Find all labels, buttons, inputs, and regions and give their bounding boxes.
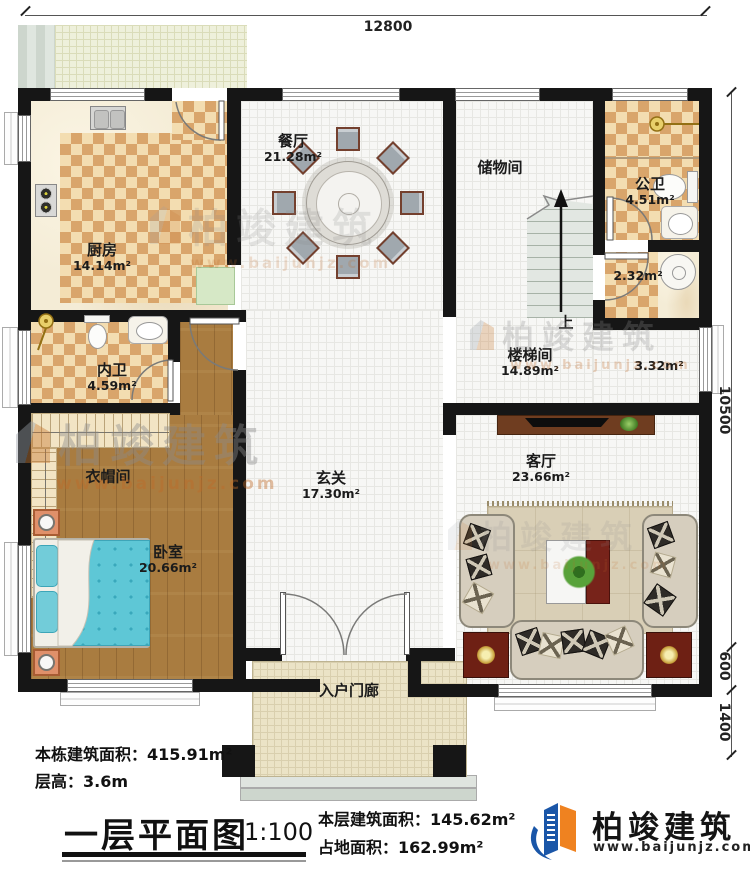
bath-window — [612, 88, 688, 101]
dining-window — [282, 88, 400, 101]
vanity-floor — [605, 252, 658, 318]
bed-pillow — [36, 545, 58, 587]
suite-corridor-floor — [180, 322, 233, 415]
window-sill — [4, 112, 18, 165]
wall-segment — [593, 101, 605, 255]
nightstand-lamp — [38, 514, 55, 531]
room-label-kitchen: 厨房 14.14m² — [73, 242, 131, 274]
wall-segment — [406, 648, 455, 661]
total-area-text: 本栋建筑面积：415.91m² — [35, 741, 232, 765]
wall-segment — [699, 88, 712, 697]
room-label-public-bath: 公卫 4.51m² — [625, 176, 674, 208]
dining-table-center — [338, 193, 360, 215]
window-sill — [2, 327, 18, 408]
dining-chair — [400, 191, 424, 215]
room-label-nook: 3.32m² — [634, 359, 683, 373]
kitchen-terrace-doorway-floor — [172, 101, 228, 140]
floor-plan-canvas: 12800 10500 600 1400 — [0, 0, 750, 870]
room-label-storage: 储物间 — [477, 159, 522, 176]
terrace-door-opening — [172, 88, 227, 101]
terrace-deck — [18, 25, 55, 88]
dining-chair — [336, 127, 360, 151]
sink-basin — [110, 110, 125, 129]
kitchen-stove — [35, 184, 57, 217]
floor-height-text: 层高：3.6m — [35, 768, 128, 792]
porch-step — [240, 788, 477, 801]
kitchen-sink — [90, 106, 126, 130]
kitchen-window — [50, 88, 145, 101]
entry-door-leaf — [280, 592, 286, 655]
bedroom-window — [67, 679, 193, 692]
window-sill — [4, 542, 18, 656]
bed-duvet — [58, 540, 150, 646]
kitchen-door-mat — [196, 267, 235, 305]
wardrobe-top — [31, 413, 170, 448]
dimension-height-label: 10500 — [716, 386, 732, 435]
table-lamp — [660, 646, 678, 664]
terrace-floor — [55, 25, 247, 88]
storage-window — [455, 88, 540, 101]
dimension-line-top — [25, 15, 707, 16]
wall-segment — [227, 101, 241, 265]
brand-website: www.baijunjz.com — [593, 840, 750, 855]
wall-segment — [443, 403, 712, 415]
dining-chair — [336, 255, 360, 279]
room-label-porch: 入户门廊 — [319, 682, 379, 699]
bed-pillow — [36, 591, 58, 633]
room-label-private-bath: 内卫 4.59m² — [87, 362, 136, 394]
page-title: 一层平面图 — [64, 808, 249, 857]
window-sill — [494, 697, 656, 711]
building-logo-icon — [524, 796, 586, 862]
dimension-step-label: 600 — [716, 651, 732, 680]
room-label-stair-hall: 楼梯间 14.89m² — [501, 347, 559, 379]
round-basin — [660, 254, 696, 290]
table-lamp — [477, 646, 495, 664]
room-label-dining: 餐厅 21.28m² — [264, 133, 322, 165]
dining-chair — [272, 191, 296, 215]
living-window — [498, 684, 652, 697]
bedroom-side-window — [18, 545, 31, 653]
side-table — [646, 632, 692, 678]
porch-column — [433, 745, 466, 777]
toilet-tank — [687, 171, 698, 203]
table-plant — [560, 553, 598, 591]
shower-divider — [605, 157, 699, 159]
room-label-living: 客厅 23.66m² — [512, 453, 570, 485]
wall-segment — [593, 318, 699, 330]
entry-door-leaf — [404, 592, 410, 655]
title-underline — [62, 852, 306, 857]
dimension-width-label: 12800 — [364, 19, 413, 35]
toilet-bowl — [88, 324, 107, 349]
nook-window — [699, 327, 712, 392]
room-label-foyer: 玄关 17.30m² — [302, 470, 360, 502]
washbasin-bowl — [668, 213, 693, 235]
nightstand-lamp — [38, 654, 55, 671]
dining-table — [306, 161, 390, 245]
staircase — [527, 198, 593, 318]
window-sill — [60, 692, 200, 706]
door-leaf — [168, 360, 173, 401]
footprint-area-text: 占地面积：162.99m² — [318, 834, 483, 858]
title-underline-thin — [62, 860, 306, 862]
wall-segment — [168, 322, 180, 362]
side-table — [463, 632, 509, 678]
drawing-scale: 1:100 — [244, 818, 313, 846]
wall-segment — [443, 101, 456, 317]
wall-segment — [648, 240, 699, 252]
private-bath-window — [18, 330, 31, 405]
stair-direction-label: 上 — [558, 314, 573, 331]
room-label-bedroom: 卧室 20.66m² — [139, 544, 197, 576]
toilet-tank — [84, 315, 110, 323]
round-basin-drain — [672, 266, 686, 280]
wall-segment — [233, 370, 246, 692]
room-label-vanity: 2.32m² — [613, 269, 662, 283]
washbasin — [128, 316, 168, 344]
rug-fringe — [487, 501, 673, 506]
washbasin-bowl — [136, 322, 163, 340]
floor-area-text: 本层建筑面积：145.62m² — [318, 806, 515, 830]
sink-basin — [94, 110, 109, 129]
cabinet-plant — [620, 417, 638, 431]
dimension-porch-label: 1400 — [716, 703, 732, 742]
window-sill — [712, 325, 724, 394]
kitchen-side-window — [18, 115, 31, 162]
wall-segment — [443, 403, 456, 435]
washbasin — [661, 206, 698, 239]
room-label-cloakroom: 衣帽间 — [85, 468, 130, 485]
